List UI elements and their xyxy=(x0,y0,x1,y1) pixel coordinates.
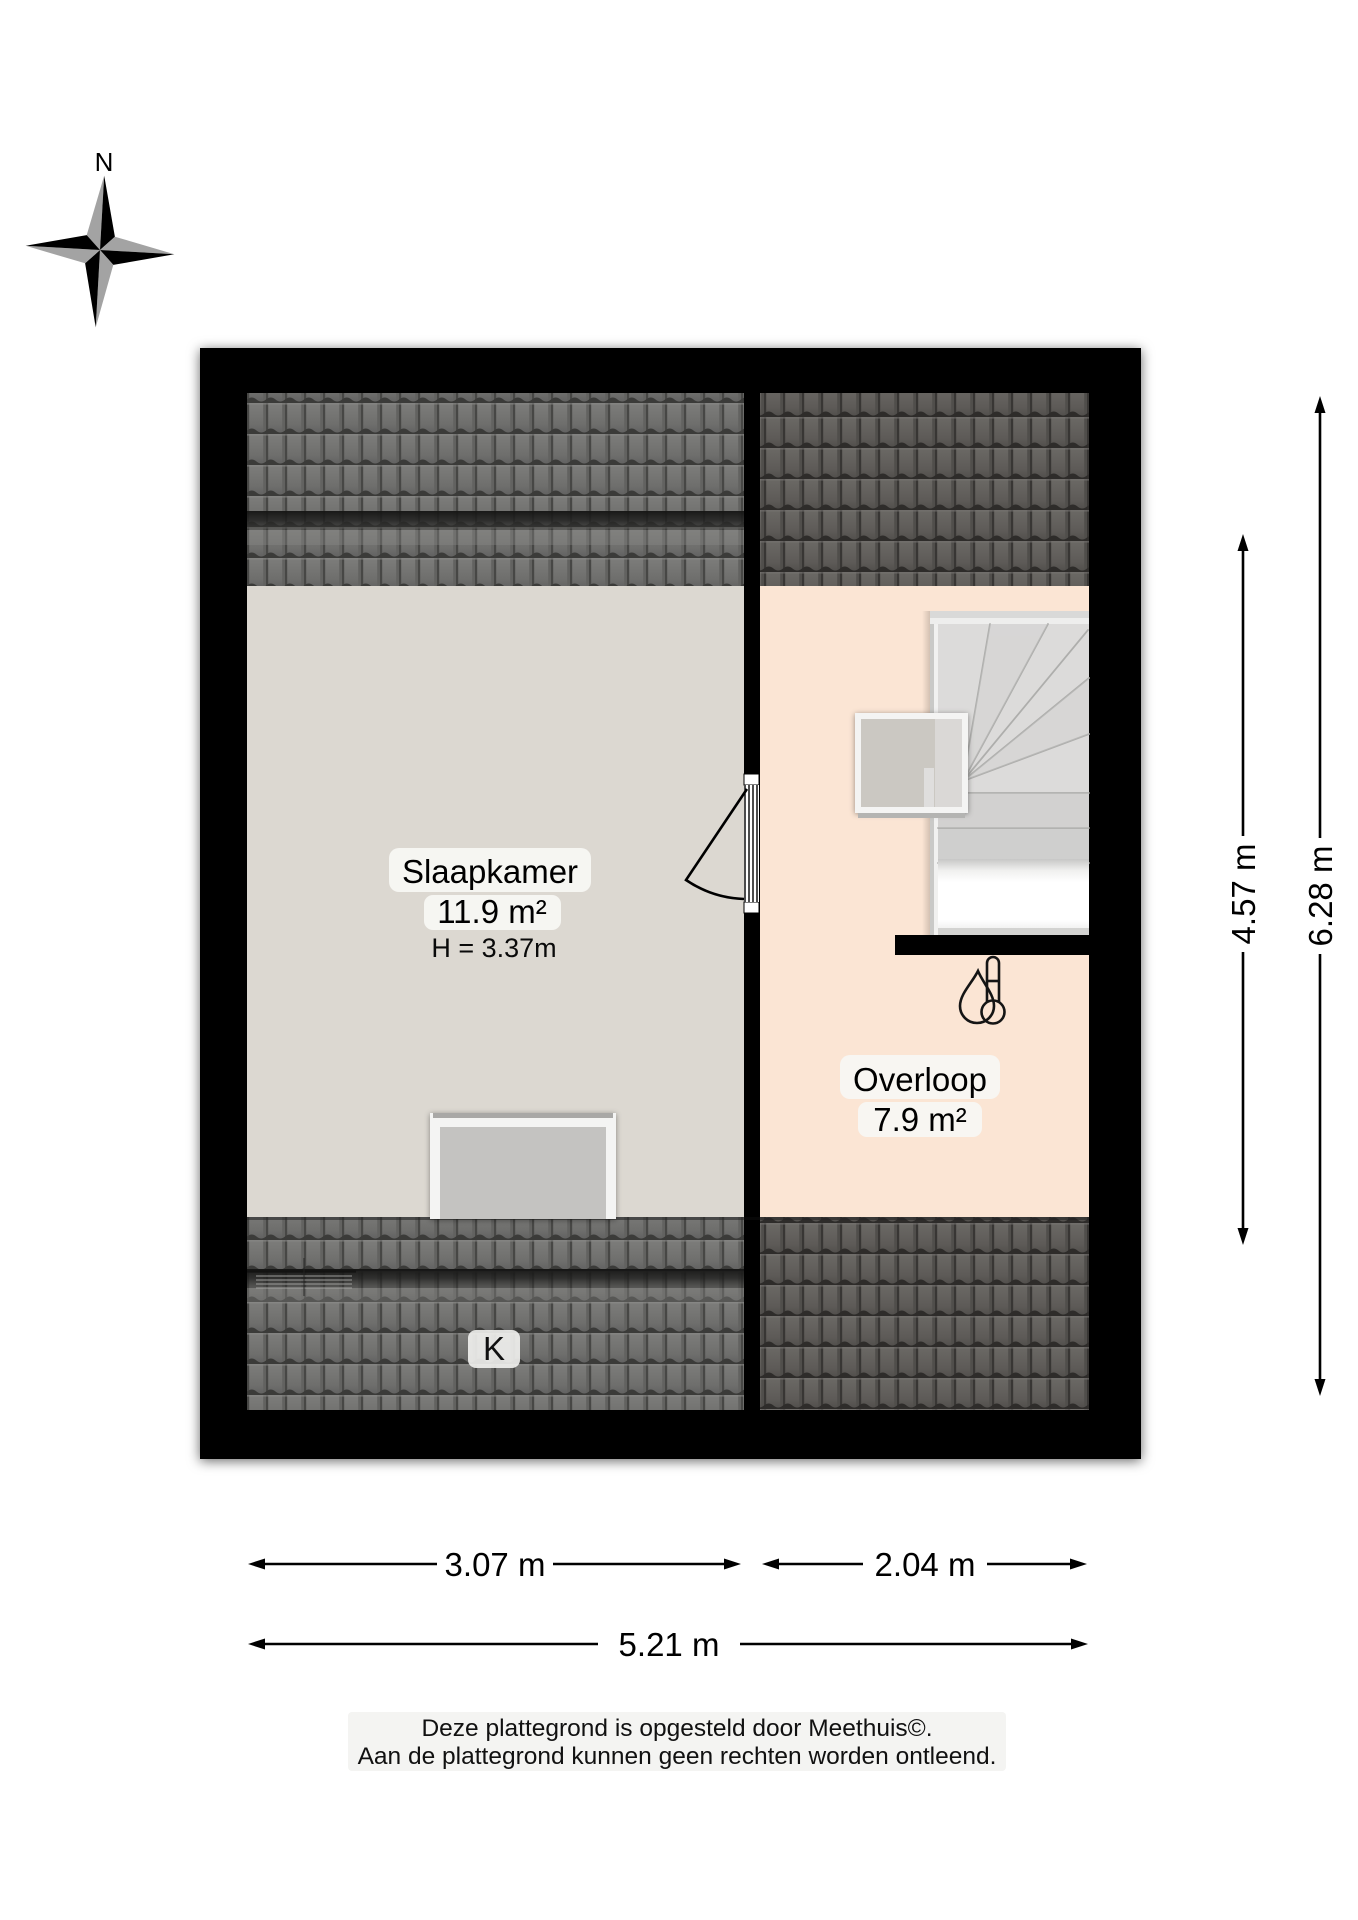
svg-text:Slaapkamer: Slaapkamer xyxy=(402,853,578,890)
svg-text:11.9 m²: 11.9 m² xyxy=(437,893,546,930)
svg-text:2.04 m: 2.04 m xyxy=(875,1546,976,1583)
svg-text:7.9 m²: 7.9 m² xyxy=(873,1101,967,1138)
svg-text:Deze plattegrond is opgesteld: Deze plattegrond is opgesteld door Meeth… xyxy=(421,1715,932,1742)
svg-text:5.21 m: 5.21 m xyxy=(619,1626,720,1663)
svg-text:H = 3.37m: H = 3.37m xyxy=(431,933,556,963)
svg-text:4.57 m: 4.57 m xyxy=(1225,844,1262,945)
svg-text:3.07 m: 3.07 m xyxy=(445,1546,546,1583)
svg-text:K: K xyxy=(483,1330,505,1367)
svg-text:Overloop: Overloop xyxy=(853,1061,987,1098)
svg-text:N: N xyxy=(95,147,114,177)
svg-text:6.28 m: 6.28 m xyxy=(1302,846,1339,947)
svg-text:Aan de plattegrond kunnen geen: Aan de plattegrond kunnen geen rechten w… xyxy=(358,1743,997,1770)
